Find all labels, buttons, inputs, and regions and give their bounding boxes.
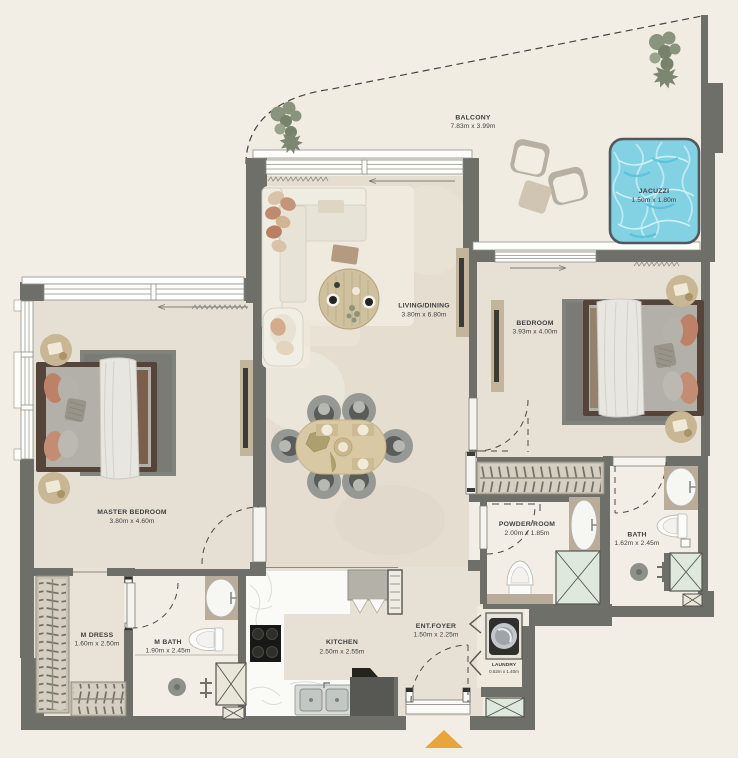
svg-text:1.50m x 2.25m: 1.50m x 2.25m (414, 632, 459, 639)
svg-text:1.62m x 2.45m: 1.62m x 2.45m (615, 540, 660, 547)
svg-text:BALCONY: BALCONY (455, 115, 491, 122)
svg-text:BATH: BATH (627, 532, 646, 539)
svg-text:POWDER ROOM: POWDER ROOM (499, 521, 555, 528)
svg-text:1.50m x 1.80m: 1.50m x 1.80m (632, 197, 677, 204)
svg-text:7.83m x 3.99m: 7.83m x 3.99m (451, 123, 496, 130)
svg-text:2.00m x 1.85m: 2.00m x 1.85m (505, 530, 550, 537)
svg-text:3.93m x 4.00m: 3.93m x 4.00m (513, 329, 558, 336)
svg-text:2.50m x 2.55m: 2.50m x 2.55m (320, 649, 365, 656)
svg-text:KITCHEN: KITCHEN (326, 639, 358, 646)
svg-text:M BATH: M BATH (154, 639, 181, 646)
svg-text:0.62m x 1.40m: 0.62m x 1.40m (489, 669, 519, 674)
svg-text:3.80m x 6.80m: 3.80m x 6.80m (402, 312, 447, 319)
svg-text:M DRESS: M DRESS (81, 632, 114, 639)
svg-text:ENT.FOYER: ENT.FOYER (416, 623, 456, 630)
svg-text:BEDROOM: BEDROOM (516, 320, 553, 327)
svg-text:3.80m x 4.60m: 3.80m x 4.60m (110, 518, 155, 525)
svg-text:MASTER BEDROOM: MASTER BEDROOM (97, 509, 167, 516)
svg-text:1.90m x 2.45m: 1.90m x 2.45m (146, 648, 191, 655)
svg-text:LIVING/DINING: LIVING/DINING (398, 303, 450, 310)
svg-text:1.60m x 2.50m: 1.60m x 2.50m (75, 641, 120, 648)
svg-text:JACUZZI: JACUZZI (639, 188, 669, 195)
svg-text:LAUNDRY: LAUNDRY (492, 662, 517, 668)
